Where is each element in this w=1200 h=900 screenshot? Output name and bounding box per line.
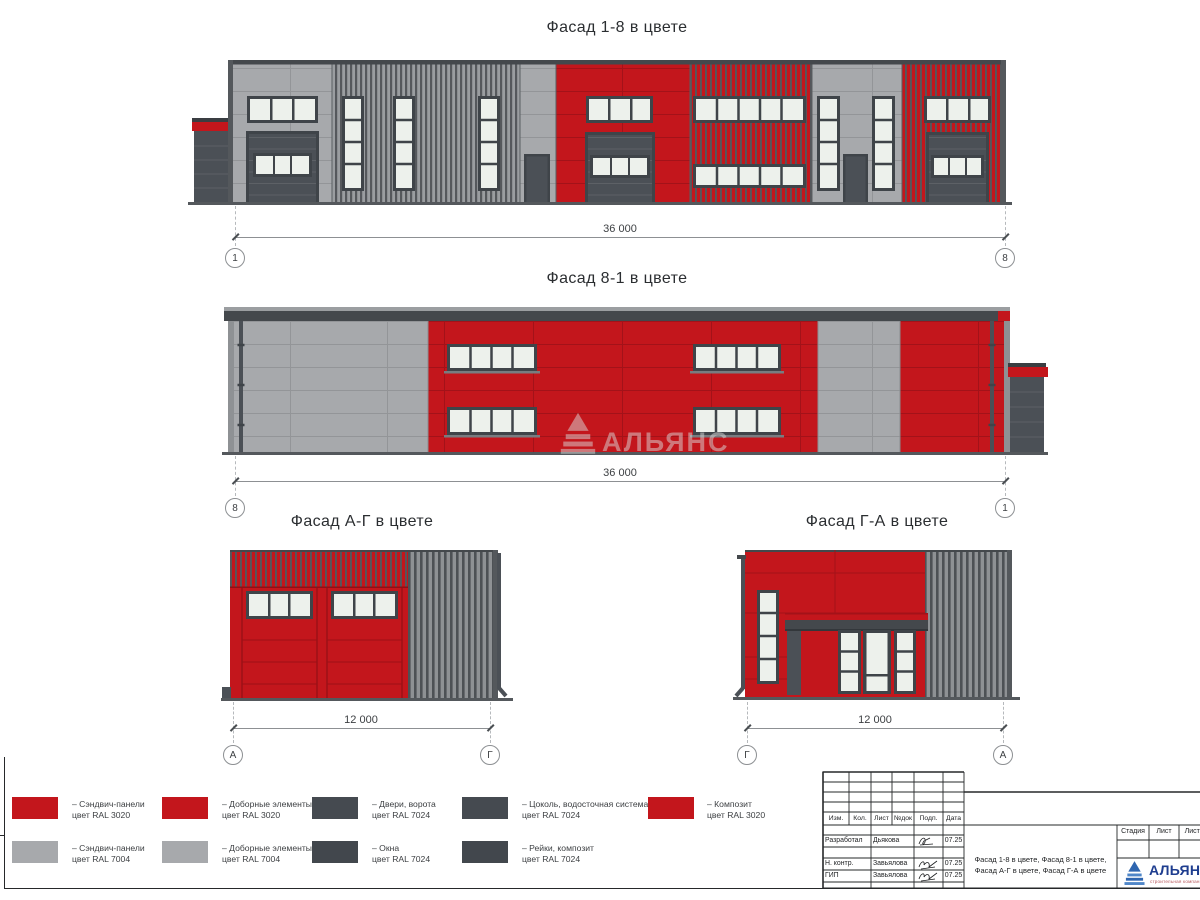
- signature: [917, 871, 941, 882]
- right-annex: [1008, 363, 1048, 452]
- dimension-value: 36 000: [603, 467, 637, 479]
- ground-line: [221, 698, 513, 701]
- tb-header-ndok: №док: [894, 815, 912, 822]
- frame-tick: [0, 835, 5, 836]
- legend-item: – Рейки, композитцвет RAL 7024: [522, 843, 594, 864]
- wall-sections: [230, 550, 498, 698]
- legend-swatch: [162, 841, 208, 863]
- extension-line: [747, 702, 748, 743]
- axis-bubble: 1: [995, 498, 1015, 518]
- dimension-line: [747, 728, 1003, 729]
- extension-line: [1005, 456, 1006, 496]
- dimension-line: [233, 728, 490, 729]
- watermark-text: АЛЬЯНС: [602, 427, 730, 458]
- facade-1-8-drawing: [186, 55, 1020, 208]
- corner-base: [222, 687, 231, 698]
- tb-stage-col: Стадия: [1121, 828, 1145, 835]
- legend-item: – Композитцвет RAL 3020: [707, 799, 765, 820]
- facade-1-8-title: Фасад 1-8 в цвете: [547, 19, 688, 37]
- tb-date: 07.25: [945, 860, 963, 867]
- downspout: [736, 555, 746, 696]
- legend-item: – Цоколь, водосточная системацвет RAL 70…: [522, 799, 648, 820]
- tb-role: Н. контр.: [825, 860, 853, 867]
- tb-role: Разработал: [825, 837, 863, 844]
- facade-g-a-title: Фасад Г-А в цвете: [806, 513, 949, 531]
- dimension-line: [235, 237, 1005, 238]
- legend-item: – Доборные элементыцвет RAL 3020: [222, 799, 312, 820]
- extension-line: [1003, 702, 1004, 743]
- company-logo-pyramid-icon: [1124, 861, 1145, 887]
- legend-swatch: [462, 797, 508, 819]
- entrance-glazing: [838, 630, 916, 694]
- extension-line: [1005, 206, 1006, 246]
- legend-swatch: [312, 841, 358, 863]
- tb-doc-title: Фасад 1-8 в цвете, Фасад 8-1 в цвете, Фа…: [966, 855, 1115, 888]
- signature: [917, 835, 941, 846]
- tb-name: Завьялова: [873, 872, 907, 879]
- extension-line: [235, 456, 236, 496]
- tb-list-col: Лист: [1156, 828, 1171, 835]
- legend-swatch: [462, 841, 508, 863]
- ground-line: [188, 202, 1012, 205]
- windows: [757, 590, 779, 684]
- legend-swatch: [648, 797, 694, 819]
- legend-item: – Сэндвич-панелицвет RAL 7004: [72, 843, 145, 864]
- extension-line: [233, 702, 234, 743]
- facade-g-a-drawing: [733, 548, 1022, 704]
- facade-a-g-title: Фасад А-Г в цвете: [291, 513, 434, 531]
- axis-bubble: 8: [225, 498, 245, 518]
- tb-header-izm: Изм.: [829, 815, 844, 822]
- legend-item: – Двери, воротацвет RAL 7024: [372, 799, 436, 820]
- tb-name: Дьякова: [873, 837, 899, 844]
- legend-item: – Сэндвич-панелицвет RAL 3020: [72, 799, 145, 820]
- tb-header-podp: Подп.: [919, 815, 937, 822]
- dimension-value: 36 000: [603, 223, 637, 235]
- axis-bubble: А: [993, 745, 1013, 765]
- axis-bubble: 1: [225, 248, 245, 268]
- dimension-value: 12 000: [344, 714, 378, 726]
- axis-bubble: А: [223, 745, 243, 765]
- legend-swatch: [312, 797, 358, 819]
- company-logo-tagline: строительная компания: [1150, 879, 1200, 884]
- tb-header-kol: Кол.: [853, 815, 866, 822]
- signature: [917, 859, 941, 870]
- tb-listov-col: Листов: [1185, 828, 1200, 835]
- facade-8-1-title: Фасад 8-1 в цвете: [547, 270, 688, 288]
- axis-bubble: 8: [995, 248, 1015, 268]
- legend-item: – Окнацвет RAL 7024: [372, 843, 430, 864]
- tb-name: Завьялова: [873, 860, 907, 867]
- frame-left-line: [4, 757, 5, 889]
- left-annex: [192, 118, 231, 202]
- downspout: [497, 553, 506, 696]
- tb-date: 07.25: [945, 872, 963, 879]
- drawing-sheet: Фасад 1-8 в цвете Фасад 8-1 в цвете Фаса…: [0, 0, 1200, 900]
- facade-a-g-drawing: [220, 548, 516, 704]
- axis-bubble: Г: [737, 745, 757, 765]
- company-watermark: АЛЬЯНС: [560, 412, 730, 458]
- tb-role: ГИП: [825, 872, 839, 879]
- ground-line: [733, 697, 1020, 700]
- tb-header-list: Лист: [874, 815, 889, 822]
- axis-bubble: Г: [480, 745, 500, 765]
- company-logo-name: АЛЬЯНС: [1149, 862, 1200, 878]
- tb-header-data: Дата: [946, 815, 961, 822]
- tb-date: 07.25: [945, 837, 963, 844]
- extension-line: [490, 702, 491, 743]
- legend-swatch: [12, 841, 58, 863]
- legend-swatch: [12, 797, 58, 819]
- legend-item: – Доборные элементыцвет RAL 7004: [222, 843, 312, 864]
- extension-line: [235, 206, 236, 246]
- dimension-line: [235, 481, 1005, 482]
- legend-swatch: [162, 797, 208, 819]
- dimension-value: 12 000: [858, 714, 892, 726]
- watermark-pyramid-icon: [560, 412, 596, 458]
